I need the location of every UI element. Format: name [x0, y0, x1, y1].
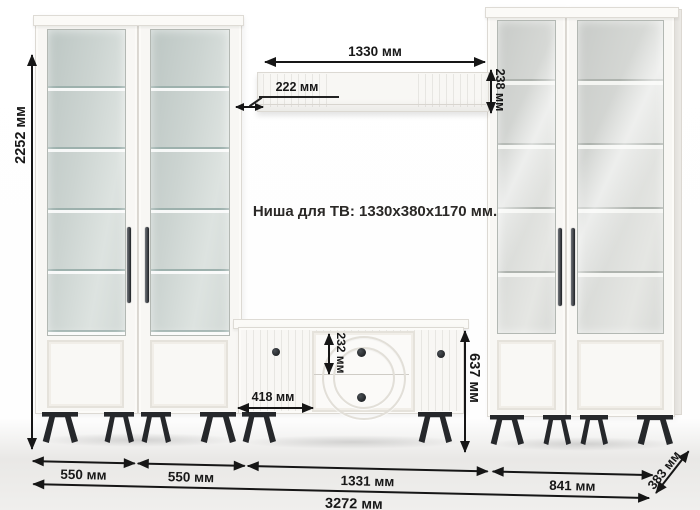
- floor-shadow: [36, 433, 241, 447]
- right-cabinet-2-handle: [571, 228, 575, 306]
- dim-left-cab1-label: 550 мм: [32, 466, 134, 483]
- dim-stand-door-width-line: [238, 407, 313, 409]
- dim-total-height-line: [31, 55, 33, 449]
- dim-total-width-label: 3272 мм: [209, 493, 499, 510]
- right-cabinet-1-handle: [558, 228, 562, 306]
- dim-drawer-height-line: [328, 334, 330, 374]
- right-group-top-board: [485, 7, 679, 18]
- right-cabinet-2-lower-panel: [577, 340, 664, 410]
- dim-drawer-height-label: 232 мм: [334, 317, 348, 389]
- left-cabinet-2-lower-panel: [150, 340, 228, 408]
- left-group-top-board: [33, 15, 244, 26]
- dim-shelf-depth-label: 238 мм: [493, 53, 507, 127]
- left-cabinet-2-glass-door: [150, 29, 230, 336]
- right-door-knob: [437, 350, 445, 358]
- dim-left-cab1-line: [33, 460, 135, 464]
- bottom-dimension-rows: 550 мм 550 мм 1331 мм 841 мм 3272 мм: [29, 452, 692, 510]
- top-drawer-knob: [357, 348, 366, 357]
- left-cabinet-1-glass-door: [47, 29, 126, 336]
- dim-stand-door-width-label: 418 мм: [233, 390, 313, 404]
- left-door-knob: [272, 348, 280, 356]
- left-cabinet-2-handle: [145, 227, 149, 303]
- dim-shelf-depth-line: [490, 70, 492, 113]
- dim-shelf-offset-leader: [259, 96, 339, 98]
- left-cabinet-1-handle: [127, 227, 131, 303]
- bottom-drawer-knob: [357, 393, 366, 402]
- dim-shelf-offset-label: 222 мм: [265, 80, 329, 94]
- dim-total-height-label: 2252 мм: [13, 98, 29, 172]
- dim-right-cabs-line: [493, 471, 653, 477]
- dim-left-cab2-label: 550 мм: [137, 468, 244, 485]
- dim-shelf-width-line: [265, 61, 485, 63]
- dim-stand-height-label: 637 мм: [466, 341, 482, 415]
- dim-shelf-offset-arrow: [236, 106, 263, 108]
- dim-right-cabs-label: 841 мм: [492, 477, 652, 496]
- wall-unit-dimension-diagram: Ниша для ТВ: 1330х380х1170 мм. 2252 мм 1…: [0, 0, 700, 510]
- right-cabinet-1-lower-panel: [497, 340, 556, 410]
- dim-shelf-width-label: 1330 мм: [315, 44, 435, 59]
- tv-shelf-fluting-right: [418, 74, 484, 107]
- left-cabinet-1-lower-panel: [47, 340, 124, 408]
- dim-left-cab2-line: [138, 462, 245, 466]
- tv-niche-label: Ниша для ТВ: 1330х380х1170 мм.: [224, 203, 526, 220]
- right-cabinet-2-glass-door: [577, 20, 664, 334]
- tv-shelf-seam: [258, 104, 486, 105]
